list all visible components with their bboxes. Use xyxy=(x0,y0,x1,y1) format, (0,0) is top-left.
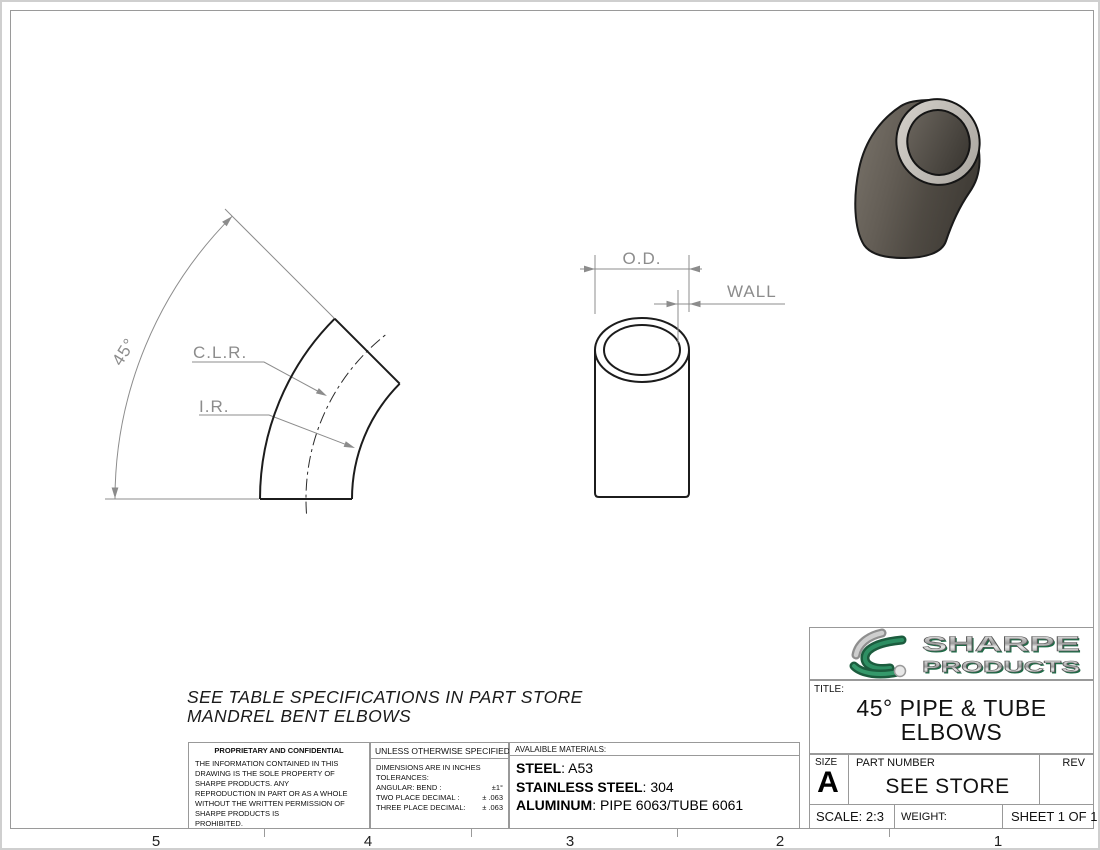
tolerances-header: UNLESS OTHERWISE SPECIFIED: xyxy=(371,743,508,759)
spec-note-line2: MANDREL BENT ELBOWS xyxy=(187,707,583,726)
weight-cell: WEIGHT: xyxy=(894,804,1003,829)
brand-line1: SHARPE xyxy=(922,633,1080,656)
scale-cell: SCALE: 2:3 xyxy=(809,804,895,829)
zone-number-2: 2 xyxy=(773,833,787,850)
zone-tick xyxy=(471,829,472,837)
spec-note: SEE TABLE SPECIFICATIONS IN PART STORE M… xyxy=(187,688,583,726)
title-label: TITLE: xyxy=(814,684,1089,695)
proprietary-body: THE INFORMATION CONTAINED IN THIS DRAWIN… xyxy=(189,759,369,829)
zone-number-3: 3 xyxy=(563,833,577,850)
proprietary-block: PROPRIETARY AND CONFIDENTIAL THE INFORMA… xyxy=(188,742,370,829)
rev-label: REV xyxy=(1040,757,1085,769)
zone-tick xyxy=(889,829,890,837)
zone-number-5: 5 xyxy=(149,833,163,850)
size-cell: SIZE A xyxy=(809,754,849,805)
zone-tick xyxy=(677,829,678,837)
elbow-profile-view xyxy=(105,209,400,514)
part-number-cell: PART NUMBER SEE STORE xyxy=(848,754,1040,805)
rev-cell: REV xyxy=(1039,754,1094,805)
zone-tick xyxy=(264,829,265,837)
material-aluminum: ALUMINUM: PIPE 6063/TUBE 6061 xyxy=(510,796,799,815)
material-stainless: STAINLESS STEEL: 304 xyxy=(510,778,799,797)
drawing-title: 45° PIPE & TUBE ELBOWS xyxy=(814,696,1089,744)
clr-label: C.L.R. xyxy=(193,343,247,363)
elbow-3d-render xyxy=(855,88,990,258)
proprietary-header: PROPRIETARY AND CONFIDENTIAL xyxy=(189,746,369,755)
three-place-tolerance: THREE PLACE DECIMAL: ± .063 xyxy=(376,803,503,813)
wall-label: WALL xyxy=(727,282,777,302)
tolerances-block: UNLESS OTHERWISE SPECIFIED: DIMENSIONS A… xyxy=(370,742,509,829)
ir-label: I.R. xyxy=(199,397,229,417)
part-number-label: PART NUMBER xyxy=(856,757,1039,769)
part-number-value: SEE STORE xyxy=(856,775,1039,799)
drawing-sheet: 45° C.L.R. I.R. O.D. WALL SEE TABLE SPEC… xyxy=(0,0,1100,850)
od-label: O.D. xyxy=(595,249,689,269)
materials-block: AVALAIBLE MATERIALS: STEEL: A53 STAINLES… xyxy=(509,742,800,829)
brand-line2: PRODUCTS xyxy=(922,659,1081,676)
sheet-cell: SHEET 1 OF 1 xyxy=(1002,804,1094,829)
zone-number-1: 1 xyxy=(991,833,1005,850)
sharpe-products-logo: SHARPE SHARPE PRODUCTS PRODUCTS xyxy=(810,628,1093,679)
two-place-tolerance: TWO PLACE DECIMAL : ± .063 xyxy=(376,793,503,803)
material-steel: STEEL: A53 xyxy=(510,759,799,778)
zone-number-4: 4 xyxy=(361,833,375,850)
spec-note-line1: SEE TABLE SPECIFICATIONS IN PART STORE xyxy=(187,688,583,707)
tolerances-body: DIMENSIONS ARE IN INCHES TOLERANCES: ANG… xyxy=(371,759,508,813)
logo-tube-s-icon xyxy=(854,633,906,677)
materials-header: AVALAIBLE MATERIALS: xyxy=(510,743,799,756)
logo-cell: SHARPE SHARPE PRODUCTS PRODUCTS xyxy=(809,627,1094,680)
title-cell: TITLE: 45° PIPE & TUBE ELBOWS xyxy=(809,680,1094,754)
angular-tolerance: ANGULAR: BEND : ±1° xyxy=(376,783,503,793)
size-value: A xyxy=(815,768,841,798)
